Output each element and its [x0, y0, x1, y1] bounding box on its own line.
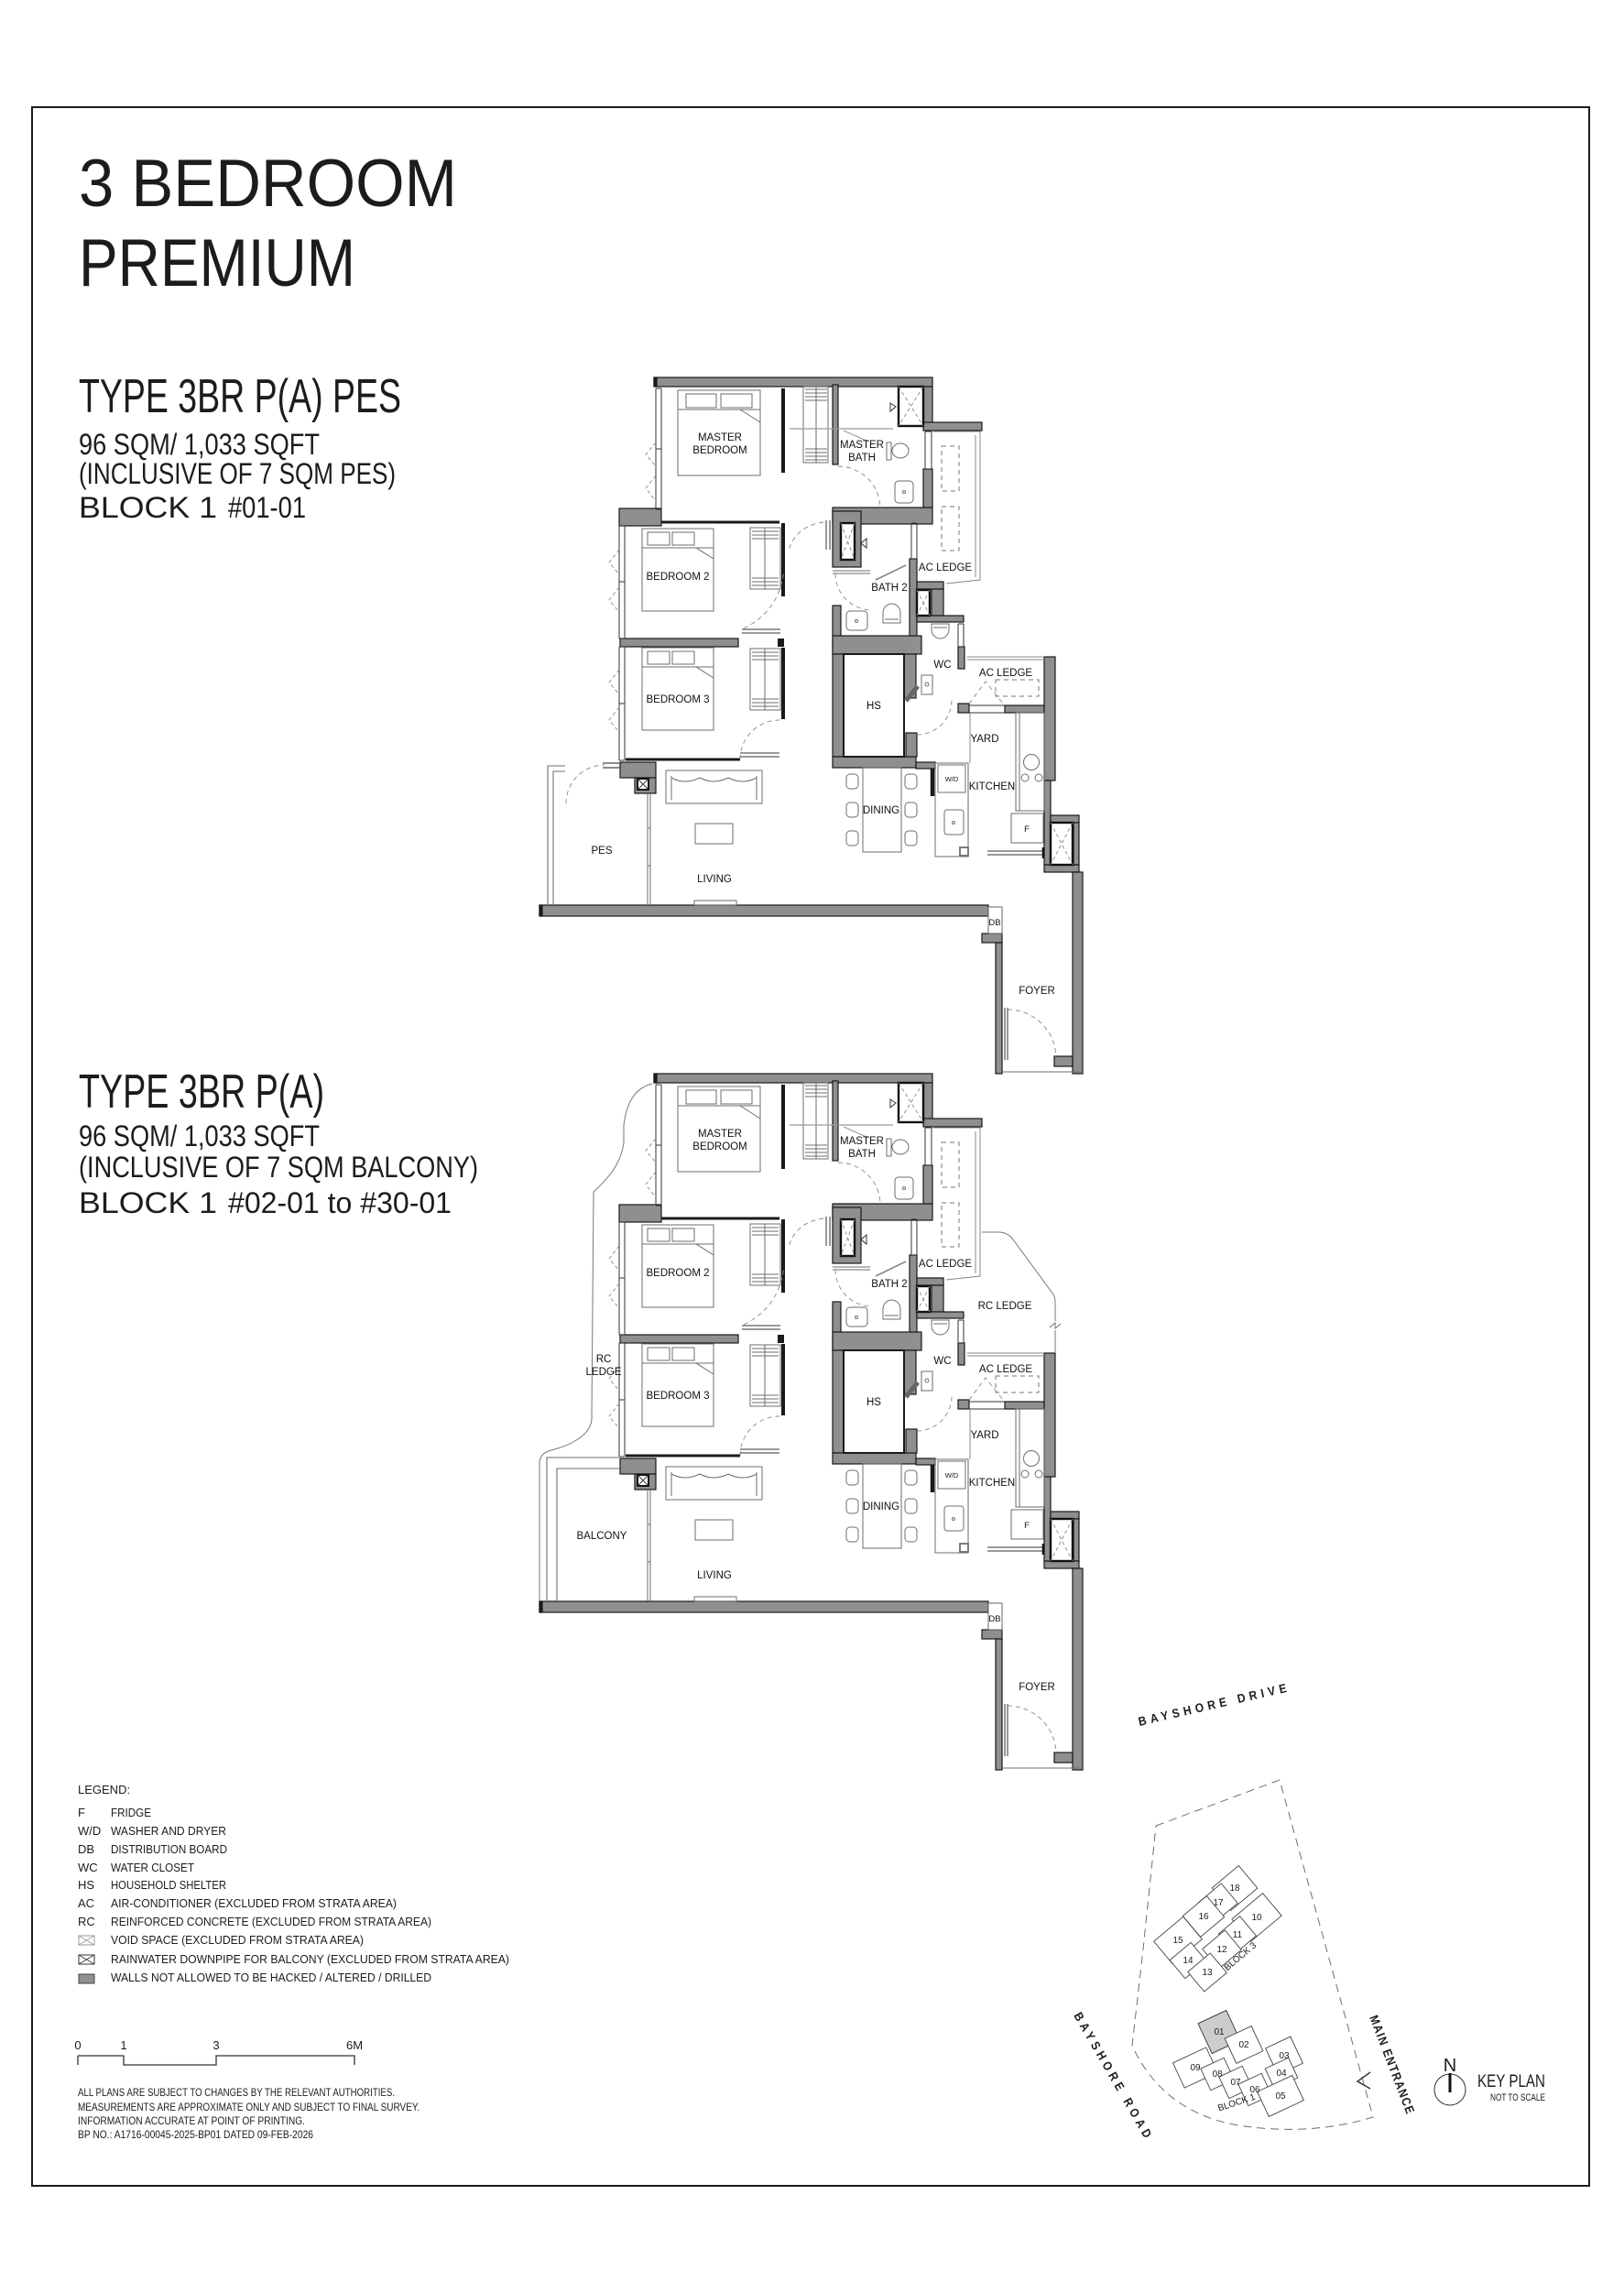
svg-text:ALL PLANS ARE SUBJECT TO CHANG: ALL PLANS ARE SUBJECT TO CHANGES BY THE …	[78, 2086, 395, 2099]
svg-text:BP NO.: A1716-00045-2025-BP01: BP NO.: A1716-00045-2025-BP01 DATED 09-F…	[78, 2128, 313, 2141]
svg-text:1: 1	[120, 2038, 126, 2052]
svg-text:TYPE 3BR P(A): TYPE 3BR P(A)	[79, 1065, 324, 1119]
svg-text:18: 18	[1229, 1884, 1240, 1894]
svg-text:0: 0	[74, 2038, 81, 2052]
svg-text:09: 09	[1190, 2063, 1201, 2073]
svg-text:13: 13	[1202, 1968, 1213, 1978]
svg-text:08: 08	[1212, 2069, 1223, 2080]
svg-text:07: 07	[1230, 2078, 1241, 2088]
svg-text:N: N	[1444, 2056, 1456, 2076]
svg-text:MEASUREMENTS ARE APPROXIMATE O: MEASUREMENTS ARE APPROXIMATE ONLY AND SU…	[78, 2101, 420, 2113]
svg-text:96 SQM/ 1,033 SQFT: 96 SQM/ 1,033 SQFT	[79, 1119, 320, 1152]
svg-text:15: 15	[1172, 1936, 1183, 1946]
svg-text:16: 16	[1198, 1912, 1209, 1922]
svg-text:#02-01 to #30-01: #02-01 to #30-01	[228, 1186, 452, 1219]
svg-text:PREMIUM: PREMIUM	[79, 226, 355, 300]
svg-text:AIR-CONDITIONER (EXCLUDED FROM: AIR-CONDITIONER (EXCLUDED FROM STRATA AR…	[111, 1896, 397, 1910]
svg-text:WC: WC	[78, 1861, 98, 1874]
svg-text:RAINWATER DOWNPIPE FOR BALCONY: RAINWATER DOWNPIPE FOR BALCONY (EXCLUDED…	[111, 1952, 509, 1966]
svg-text:01: 01	[1214, 2027, 1225, 2037]
svg-text:04: 04	[1276, 2069, 1287, 2079]
svg-text:RC: RC	[596, 1354, 612, 1365]
svg-text:LEDGE: LEDGE	[586, 1367, 622, 1378]
svg-text:(INCLUSIVE OF 7 SQM BALCONY): (INCLUSIVE OF 7 SQM BALCONY)	[79, 1151, 478, 1184]
svg-text:96 SQM/ 1,033 SQFT: 96 SQM/ 1,033 SQFT	[79, 428, 320, 461]
svg-text:11: 11	[1233, 1930, 1243, 1940]
svg-text:DB: DB	[78, 1842, 94, 1856]
svg-text:17: 17	[1213, 1898, 1224, 1908]
svg-text:05: 05	[1275, 2091, 1286, 2102]
svg-text:VOID SPACE (EXCLUDED FROM STRA: VOID SPACE (EXCLUDED FROM STRATA AREA)	[111, 1933, 364, 1947]
svg-text:3: 3	[213, 2038, 219, 2052]
svg-text:BALCONY: BALCONY	[577, 1531, 627, 1542]
svg-text:AC: AC	[78, 1896, 94, 1910]
svg-text:RC: RC	[78, 1915, 95, 1928]
svg-text:REINFORCED CONCRETE (EXCLUDED: REINFORCED CONCRETE (EXCLUDED FROM STRAT…	[111, 1915, 431, 1928]
svg-text:FRIDGE: FRIDGE	[111, 1806, 151, 1819]
svg-text:BLOCK 1: BLOCK 1	[79, 1186, 217, 1219]
svg-text:12: 12	[1216, 1945, 1227, 1955]
svg-text:RC LEDGE: RC LEDGE	[978, 1301, 1032, 1312]
svg-text:WASHER AND DRYER: WASHER AND DRYER	[111, 1824, 226, 1838]
svg-text:KEY PLAN: KEY PLAN	[1477, 2072, 1545, 2091]
svg-text:INFORMATION ACCURATE AT POINT: INFORMATION ACCURATE AT POINT OF PRINTIN…	[78, 2114, 305, 2127]
svg-text:6M: 6M	[346, 2038, 363, 2052]
svg-text:LEGEND:: LEGEND:	[78, 1783, 130, 1796]
svg-text:F: F	[78, 1806, 85, 1819]
svg-text:DISTRIBUTION BOARD: DISTRIBUTION BOARD	[111, 1842, 227, 1856]
svg-text:WATER CLOSET: WATER CLOSET	[111, 1861, 194, 1874]
svg-text:HOUSEHOLD SHELTER: HOUSEHOLD SHELTER	[111, 1878, 226, 1892]
svg-text:10: 10	[1251, 1913, 1262, 1923]
svg-text:HS: HS	[78, 1878, 94, 1892]
svg-text:PES: PES	[591, 846, 612, 857]
svg-text:TYPE 3BR P(A) PES: TYPE 3BR P(A) PES	[79, 370, 401, 423]
svg-text:03: 03	[1279, 2051, 1290, 2061]
svg-text:(INCLUSIVE OF 7 SQM PES): (INCLUSIVE OF 7 SQM PES)	[79, 457, 396, 490]
svg-text:02: 02	[1238, 2040, 1249, 2050]
svg-text:WALLS NOT ALLOWED TO BE HACKED: WALLS NOT ALLOWED TO BE HACKED / ALTERED…	[111, 1971, 431, 1984]
svg-text:NOT TO SCALE: NOT TO SCALE	[1490, 2092, 1545, 2103]
svg-text:#01-01: #01-01	[228, 491, 306, 524]
svg-text:BLOCK 1: BLOCK 1	[79, 491, 217, 524]
svg-text:14: 14	[1183, 1956, 1193, 1966]
svg-text:3 BEDROOM: 3 BEDROOM	[79, 147, 457, 221]
svg-text:W/D: W/D	[78, 1824, 101, 1838]
